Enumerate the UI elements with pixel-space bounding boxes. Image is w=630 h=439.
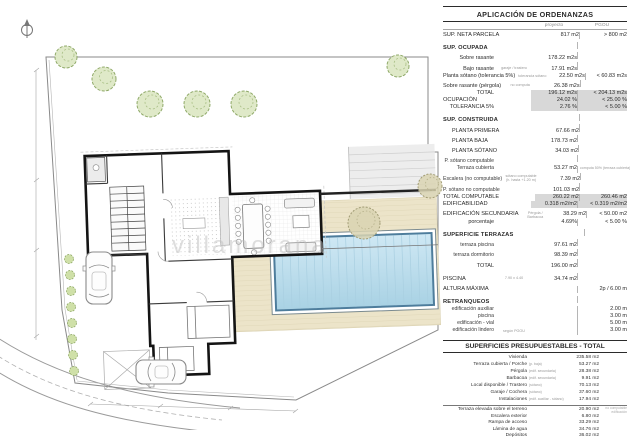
budget-label: Garaje / Cochera [443,390,527,396]
value-pgou [577,62,627,69]
table-row: SUP. NETA PARCELA 817 m2 > 800 m2 [443,32,627,39]
value-proyecto: 98.39 m2 [531,252,577,259]
value-proyecto: 817 m2 [535,32,579,39]
row-label: TOTAL COMPUTABLE [443,194,502,201]
ordinance-panel: APLICACIÓN DE ORDENANZAS proyecto PGOU S… [443,6,627,439]
row-label: ALTURA MÁXIMA [443,286,497,293]
value-pgou [580,173,627,180]
value-pgou [577,259,627,266]
value-pgou [584,229,627,236]
budget-value: 235.58 m2 [565,355,599,361]
budget-value: 28.38 m2 [565,369,599,375]
value-pgou [577,273,627,280]
row-label: EDIFICABILIDAD [443,201,497,208]
value-proyecto: 0.318 m2/m2 [531,201,577,208]
tree-icon [231,91,257,117]
value-proyecto: 38.29 m2 [549,211,586,218]
budget-rows: Vivienda 235.58 m2 Terraza cubierta / Po… [443,353,627,439]
row-label: Terraza cubierta [443,165,497,172]
row-label: Escalera (no computable) [443,176,505,183]
value-pgou [579,183,627,190]
row-note: sótano computable (h. hasta +1.20 m) [505,174,537,182]
shrub-icon [68,335,77,344]
table-row: SUPERFICIE TERRAZAS [443,229,627,239]
budget-value: 36.02 m2 [565,433,599,439]
row-label: Bajo rasante [443,66,497,73]
value-pgou: 260.46 m2 [579,194,627,201]
budget-label: Barbacoa [443,376,527,382]
budget-value: 20.90 m2 [565,407,599,413]
table-row: edificación lindero según PGOU 3.00 m [443,327,627,334]
shrub-icon [66,271,75,280]
tree-icon [184,91,210,117]
row-note: tolerancia sótano [518,74,546,78]
row-label: PLANTA BAJA [443,138,497,145]
table-row: Sobre rasante (pérgola) no computa 26.38… [443,80,627,90]
value-pgou [577,135,627,142]
budget-note: (p. baja) [527,361,565,367]
table-row: terraza piscina 97.61 m2 [443,239,627,249]
budget-note: (edif. auxiliar - sótano) [527,396,565,402]
budget-title: SUPERFICIES PRESUPUESTABLES - TOTAL [443,340,627,353]
budget-note: (sótano) [527,389,565,395]
row-label: P. sótano no computable [443,187,503,194]
row-label: SUPERFICIE TERRAZAS [443,232,516,239]
value-pgou [577,155,627,162]
shrub-icon [67,287,76,296]
value-pgou: < 50.00 m2 [586,211,627,218]
value-pgou: computa 50% (terraza cubierta) [577,166,627,173]
value-proyecto: 26.38 m2s [536,83,579,90]
value-pgou: < 204.13 m2s [577,90,627,97]
budget-row: Local disponible / Trastero (sótano) 70.… [443,382,627,389]
shrub-icon [70,367,79,376]
value-pgou: 2.00 m [577,306,627,313]
row-label: RETRANQUEOS [443,299,497,306]
table-row: terraza dormitorio 98.39 m2 [443,249,627,259]
row-label: SUP. CONSTRUIDA [443,117,501,124]
row-label: EDIFICACIÓN SECUNDARIA [443,211,522,218]
budget-value: 53.27 m2 [565,362,599,368]
value-pgou [578,145,627,152]
car-icon [83,252,115,304]
budget-value: 9.91 m2 [565,376,599,382]
value-pgou: < 25.00 % [577,97,627,104]
budget-side-note: no computable edificación [599,407,627,414]
row-label: PISCINA [443,276,497,283]
table-row: PISCINA 7.90 x 4.40 34.74 m2 [443,273,627,283]
budget-label: Depósitos [443,433,527,439]
table-row: edificación auxiliar 2.00 m [443,306,627,313]
budget-label: Instalaciones [443,397,527,403]
row-label: edificación lindero [443,327,497,334]
budget-label: Vivienda [443,355,527,361]
value-proyecto: 101.03 m2 [535,187,579,194]
budget-value: 70.13 m2 [565,383,599,389]
value-proyecto: 22.50 m2s [547,73,585,80]
row-label: SUP. NETA PARCELA [443,32,502,39]
table-row: PLANTA BAJA 178.73 m2 [443,135,627,145]
tree-icon [137,91,163,117]
row-label: terraza dormitorio [443,252,497,259]
table-row: piscina 3.00 m [443,313,627,320]
table-row: SUP. CONSTRUIDA [443,114,627,124]
value-proyecto: 196.12 m2s [531,90,577,97]
row-note: 7.90 x 4.40 [497,276,531,280]
budget-note: (edif. secundaria) [527,375,565,381]
column-headers: proyecto PGOU [443,22,627,31]
row-note: Pérgola / Barbacoa [522,211,549,219]
value-proyecto: 17.91 m2s [531,66,577,73]
tree-icon [55,46,77,68]
table-row: Terraza cubierta 53.27 m2 computa 50% (t… [443,165,627,173]
row-note: según PGOU [497,329,531,333]
budget-label: Terraza elevada sobre el terreno [443,407,527,413]
table-row: edificación - vial 5.00 m [443,320,627,327]
budget-row: Pérgola (edif. secundaria) 28.38 m2 [443,368,627,375]
value-pgou: < 5.00 % [577,219,627,226]
table-row: RETRANQUEOS [443,296,627,306]
budget-row: Terraza elevada sobre el terreno 20.90 m… [443,405,627,415]
row-note: no computa [504,83,536,87]
value-proyecto: 7.39 m2 [537,176,580,183]
table-row: EDIFICACIÓN SECUNDARIA Pérgola / Barbaco… [443,211,627,219]
budget-label: Pérgola [443,369,527,375]
olive-tree-icon [348,207,380,239]
value-pgou: 3.00 m [577,327,627,334]
row-label: SUP. OCUPADA [443,45,497,52]
value-proyecto: 97.61 m2 [531,242,577,249]
value-proyecto: 178.73 m2 [531,138,577,145]
table-row: ALTURA MÁXIMA 2p / 6.00 m [443,286,627,293]
row-label: edificación auxiliar [443,306,497,313]
ordinance-rows: SUP. NETA PARCELA 817 m2 > 800 m2 SUP. O… [443,30,627,335]
row-label: TOLERANCIA 5% [443,104,497,111]
row-label: piscina [443,313,497,320]
budget-note: (edif. secundaria) [527,368,565,374]
value-proyecto: 34.74 m2 [531,276,577,283]
row-label: TOTAL [443,90,497,97]
table-row: Escalera (no computable) sótano computab… [443,173,627,183]
budget-row: Terraza cubierta / Porche (p. baja) 53.2… [443,361,627,368]
budget-note: (sótano) [527,382,565,388]
value-pgou [577,296,627,303]
table-row: Planta sótano (tolerancia 5%) tolerancia… [443,73,627,80]
value-pgou: 3.00 m [577,313,627,320]
table-row: TOTAL 196.12 m2s < 204.13 m2s [443,90,627,97]
value-pgou [577,52,627,59]
table-row: porcentaje 4.69% < 5.00 % [443,219,627,226]
table-row: Bajo rasante garaje / trastero 17.91 m2s [443,62,627,72]
value-pgou: 2p / 6.00 m [577,286,627,293]
table-row: TOTAL COMPUTABLE 260.22 m2 260.46 m2 [443,194,627,201]
budget-value: 37.60 m2 [565,390,599,396]
value-pgou [580,80,627,87]
value-note: computa 50% (terraza cubierta) [580,166,627,170]
table-row: PLANTA SÓTANO 34.03 m2 [443,145,627,155]
shrub-icon [68,319,77,328]
col-proyecto: proyecto [531,23,577,28]
shrub-icon [69,351,78,360]
stairs [110,186,146,251]
table-row: EDIFICABILIDAD 0.318 m2/m2 < 0.319 m2/m2 [443,201,627,208]
row-label: PLANTA SÓTANO [443,148,500,155]
tree-icon [387,55,409,77]
value-proyecto: 2.76 % [531,104,577,111]
row-label: PLANTA PRIMERA [443,128,502,135]
shrub-icon [67,303,76,312]
value-pgou [577,239,627,246]
row-label: Sobre rasante (pérgola) [443,83,504,90]
budget-row: Garaje / Cochera (sótano) 37.60 m2 [443,389,627,396]
row-label: OCUPACIÓN [443,97,497,104]
value-pgou: 5.00 m [577,320,627,327]
budget-row: Instalaciones (edif. auxiliar - sótano) … [443,396,627,403]
value-pgou: < 0.319 m2/m2 [577,201,627,208]
value-pgou [577,42,627,49]
row-label: terraza piscina [443,242,497,249]
table-row: SUP. OCUPADA [443,42,627,52]
value-proyecto: 53.27 m2 [531,165,577,172]
budget-row: Depósitos 36.02 m2 [443,433,627,439]
table-row: PLANTA PRIMERA 67.66 m2 [443,124,627,134]
value-pgou [579,124,627,131]
car-icon [136,357,186,387]
row-label: Sobre rasante [443,55,497,62]
table-row: P. sótano computable [443,155,627,165]
value-pgou: < 60.83 m2s [585,73,627,80]
shrub-row [65,255,79,376]
value-pgou [577,249,627,256]
table-row: P. sótano no computable 101.03 m2 [443,183,627,193]
north-arrow-icon [22,19,33,38]
budget-label: Local disponible / Trastero [443,383,527,389]
value-proyecto: 178.22 m2s [531,55,577,62]
shrub-icon [65,255,74,264]
olive-tree-icon [418,174,442,198]
budget-label: Terraza cubierta / Porche [443,362,527,368]
bathroom [87,157,106,182]
value-proyecto: 196.00 m2 [531,263,577,270]
budget-row: Barbacoa (edif. secundaria) 9.91 m2 [443,375,627,382]
value-pgou [579,114,628,121]
row-note: garaje / trastero [497,66,531,70]
col-pgou: PGOU [577,23,627,28]
watermark-text: villamorana [172,232,328,259]
value-proyecto: 260.22 m2 [535,194,579,201]
row-label: TOTAL [443,263,497,270]
row-label: Planta sótano (tolerancia 5%) [443,73,518,80]
row-label: P. sótano computable [443,158,497,165]
value-proyecto: 24.02 % [531,97,577,104]
table-row: Sobre rasante 178.22 m2s [443,52,627,62]
value-proyecto: 4.69% [531,219,577,226]
tree-icon [92,67,116,91]
row-label: edificación - vial [443,320,497,327]
table-row: OCUPACIÓN 24.02 % < 25.00 % [443,97,627,104]
ordinance-title: APLICACIÓN DE ORDENANZAS [443,6,627,22]
value-pgou: > 800 m2 [579,32,627,39]
value-proyecto: 34.03 m2 [533,148,578,155]
table-row: TOTAL 196.00 m2 [443,259,627,269]
row-label: porcentaje [443,219,497,226]
table-row: TOLERANCIA 5% 2.76 % < 5.00 % [443,104,627,111]
value-proyecto: 67.66 m2 [535,128,579,135]
budget-value: 17.94 m2 [565,397,599,403]
value-pgou: < 5.00 % [577,104,627,111]
